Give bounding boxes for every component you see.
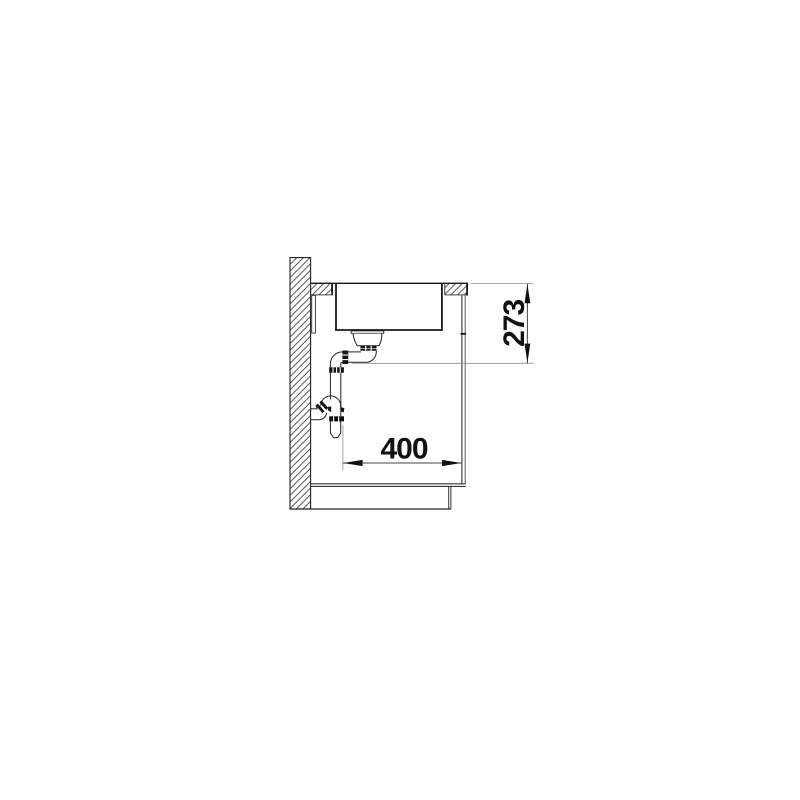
svg-text:273: 273 bbox=[498, 300, 531, 347]
svg-text:400: 400 bbox=[380, 433, 427, 466]
